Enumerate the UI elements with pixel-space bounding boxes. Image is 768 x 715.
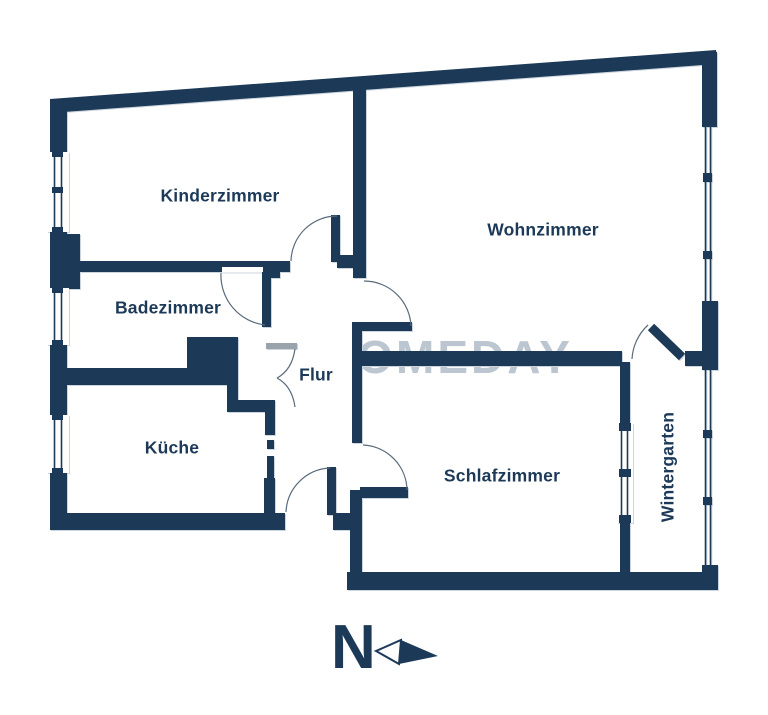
entrance-door-arc <box>286 468 330 512</box>
badezimmer-door-leaf <box>262 272 271 327</box>
kinderzimmer-door-leaf <box>331 215 340 262</box>
threshold-bar <box>266 343 297 349</box>
window-wintergarten <box>703 370 712 565</box>
entrance-door-leaf <box>327 467 336 515</box>
room-label-wohnzimmer: Wohnzimmer <box>487 220 599 241</box>
room-label-badezimmer: Badezimmer <box>115 298 221 319</box>
schlafzimmer-door-arc <box>363 445 407 490</box>
wintergarten-door-leaf <box>651 327 682 357</box>
watermark-text: HOMEDAY <box>352 328 573 386</box>
exterior-walls <box>50 50 718 590</box>
north-label: N <box>331 617 376 679</box>
room-label-kueche: Küche <box>145 438 199 459</box>
window-schlafzimmer-wintergarten <box>617 423 633 523</box>
badezimmer-door-arc <box>221 273 265 325</box>
kinderzimmer-door-arc <box>291 216 337 261</box>
window-badezimmer <box>47 288 69 345</box>
wohnzimmer-door-arc <box>364 281 411 326</box>
window-kinderzimmer <box>47 152 69 232</box>
schlafzimmer-door-leaf <box>360 487 408 498</box>
room-label-wintergarten: Wintergarten <box>658 412 679 522</box>
room-label-schlafzimmer: Schlafzimmer <box>444 466 560 487</box>
room-label-kinderzimmer: Kinderzimmer <box>160 186 279 207</box>
north-arrow-icon <box>376 640 438 664</box>
floor-plan: HOMEDAY <box>0 0 768 715</box>
watermark: HOMEDAY <box>352 328 644 386</box>
room-label-flur: Flur <box>299 365 333 386</box>
window-wohnzimmer <box>703 127 712 301</box>
closet-door-arc-bottom <box>277 378 295 407</box>
closet-door-arc-top <box>277 349 295 378</box>
window-kueche <box>47 415 69 473</box>
